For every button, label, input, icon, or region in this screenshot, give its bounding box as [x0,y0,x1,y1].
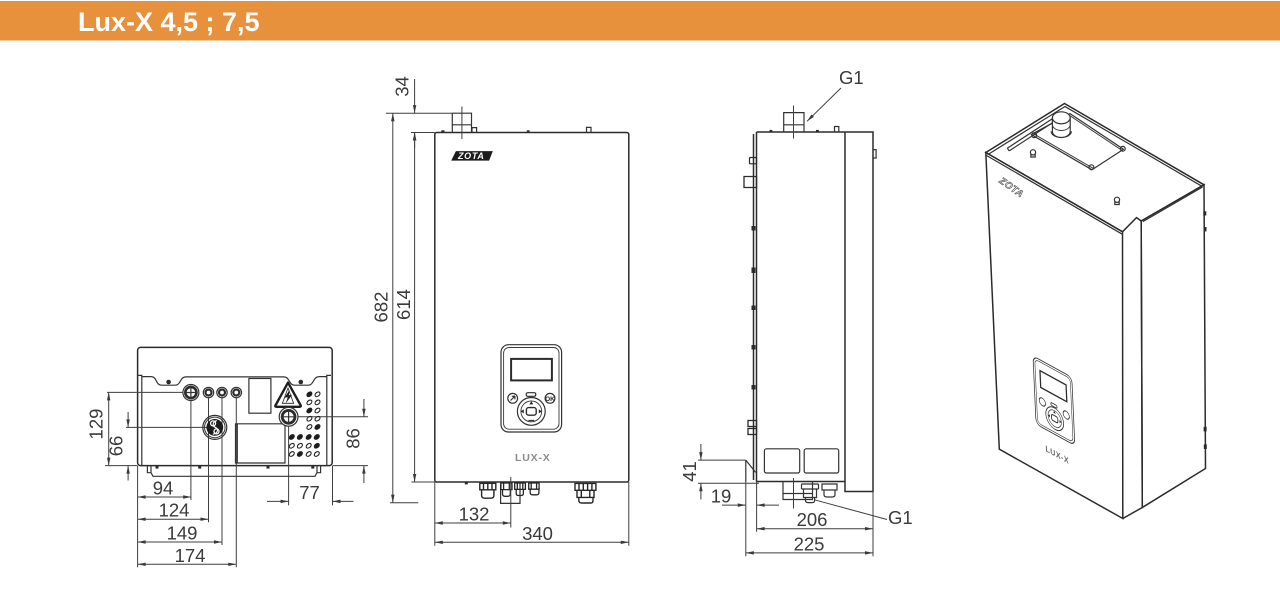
svg-text:66: 66 [105,436,126,457]
svg-text:77: 77 [299,482,320,503]
svg-text:41: 41 [679,461,700,482]
svg-text:132: 132 [459,504,490,525]
svg-text:Lux-X 4,5 ; 7,5: Lux-X 4,5 ; 7,5 [78,7,260,37]
svg-text:340: 340 [522,523,553,544]
svg-text:149: 149 [167,523,198,544]
svg-text:OK: OK [545,396,555,403]
svg-text:86: 86 [342,428,363,449]
svg-text:174: 174 [175,545,206,566]
svg-text:19: 19 [711,486,732,507]
svg-text:G1: G1 [888,507,913,528]
svg-text:ZOTA: ZOTA [457,151,485,161]
svg-text:LUX-X: LUX-X [515,452,551,464]
svg-text:206: 206 [797,509,828,530]
svg-text:94: 94 [153,478,174,499]
svg-text:G1: G1 [839,67,864,88]
svg-text:614: 614 [393,289,414,320]
svg-text:682: 682 [370,292,391,323]
svg-text:129: 129 [85,409,106,440]
svg-text:34: 34 [391,76,412,97]
svg-text:225: 225 [794,533,825,554]
svg-text:124: 124 [159,500,190,521]
